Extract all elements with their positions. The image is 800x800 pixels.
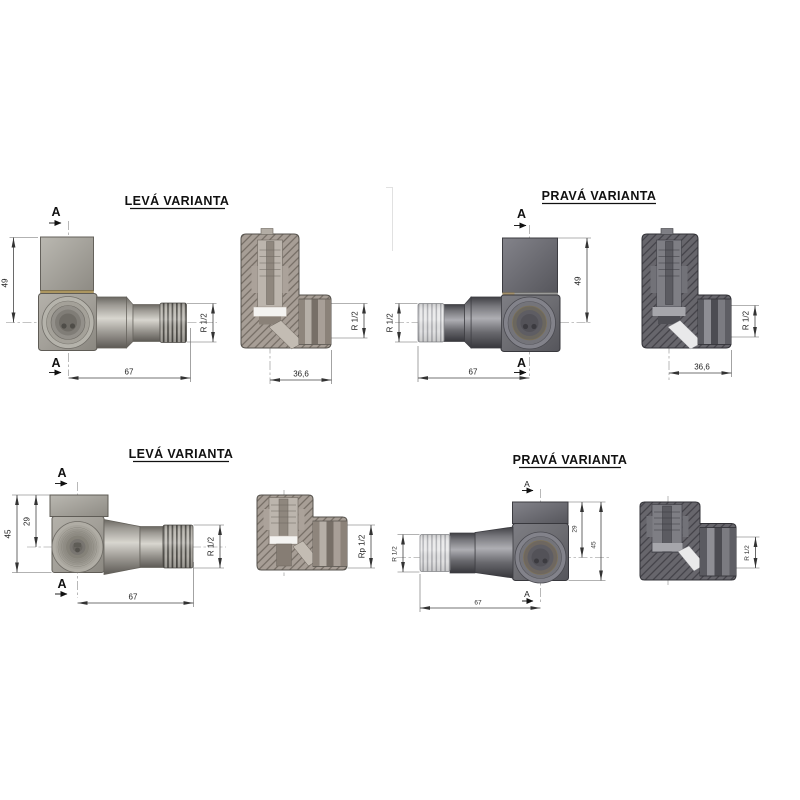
tr-section-width: 36,6 [694,363,710,372]
tr-cut-letter-top: A [517,207,526,221]
tl-section-thread: R 1/2 [351,311,360,331]
tl-section-view: 36,6 R 1/2 [241,229,368,385]
tl-socket-rings [299,299,331,345]
bl-dim-height-total: 45 [4,529,13,538]
bl-title: LEVÁ VARIANTA [129,446,234,461]
bl-dim-thread: R 1/2 [207,536,216,556]
br-dim-height-total: 45 [591,541,598,549]
br-dim-length: 67 [474,600,482,607]
br-socket-rings [700,528,736,577]
bl-cut-letter-top: A [57,466,66,480]
quadrant-bottom-left: LEVÁ VARIANTA [4,446,376,607]
quadrant-bottom-right: PRAVÁ VARIANTA A A [392,452,760,612]
br-cut-letter-top: A [524,479,530,489]
bl-valve-3d-view [50,495,193,575]
tr-title: PRAVÁ VARIANTA [542,188,657,203]
tl-cut-letter-bottom: A [51,356,60,370]
tr-dim-length: 67 [469,368,478,377]
stray-construction-line [386,187,393,251]
tr-dim-thread: R 1/2 [386,313,395,333]
br-pipe-end [420,535,450,572]
bl-cut-letter-bottom: A [57,577,66,591]
br-section-view: R 1/2 [640,496,760,585]
quadrant-top-right: PRAVÁ VARIANTA A [386,188,760,382]
tl-valve-3d-view [39,237,187,351]
br-dim-thread: R 1/2 [392,546,399,562]
br-valve-3d-view [420,502,569,583]
br-dim-height-top: 29 [572,525,579,533]
tr-socket-rings [698,299,731,345]
br-title: PRAVÁ VARIANTA [513,452,628,467]
bl-dim-height-top: 29 [23,517,32,526]
tr-section-thread: R 1/2 [742,310,751,330]
tl-dim-length: 67 [125,368,134,377]
bl-dim-length: 67 [129,593,138,602]
bl-socket-rings [313,521,347,567]
bl-section-view: Rp 1/2 [257,490,375,576]
drawing-canvas: LEVÁ VARIANTA A [0,0,800,800]
tr-pipe-end [418,304,444,343]
br-cut-letter-bottom: A [524,589,530,599]
valve-technical-drawing: LEVÁ VARIANTA A [0,0,800,800]
tl-thread [160,303,187,343]
quadrant-top-left: LEVÁ VARIANTA A [1,193,368,384]
tr-section-view: 36,6 R 1/2 [642,229,759,381]
tl-title: LEVÁ VARIANTA [125,193,230,208]
bl-section-thread: Rp 1/2 [358,534,367,558]
tr-valve-3d-view [418,238,560,352]
bl-thread [163,525,193,568]
tl-cut-letter-top: A [51,205,60,219]
tr-dim-height: 49 [574,276,583,285]
tl-dim-thread: R 1/2 [200,313,209,333]
br-section-thread: R 1/2 [744,545,751,561]
tr-cut-letter-bottom: A [517,356,526,370]
tl-section-width: 36,6 [293,370,309,379]
tl-dim-height: 49 [1,278,10,287]
